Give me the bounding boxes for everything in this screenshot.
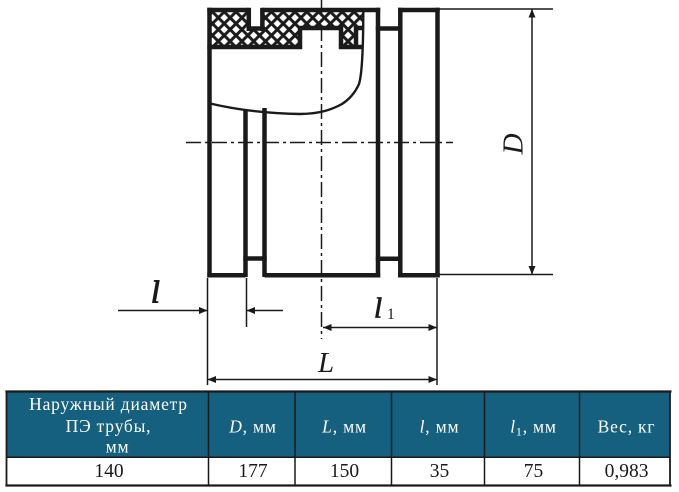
- svg-text:0,983: 0,983: [605, 461, 649, 482]
- svg-text:Наружный диаметр: Наружный диаметр: [29, 394, 188, 414]
- svg-text:ПЭ трубы,: ПЭ трубы,: [66, 416, 152, 436]
- svg-text:l: l: [151, 275, 160, 310]
- svg-text:150: 150: [330, 461, 359, 482]
- svg-text:140: 140: [94, 461, 123, 482]
- svg-text:D: D: [498, 133, 530, 155]
- svg-text:35: 35: [430, 461, 450, 482]
- svg-text:L: L: [317, 347, 334, 379]
- svg-text:D, мм: D, мм: [228, 417, 277, 437]
- svg-text:L, мм: L, мм: [321, 417, 367, 437]
- svg-text:l, мм: l, мм: [420, 417, 460, 437]
- svg-text:мм: мм: [106, 437, 130, 457]
- svg-text:Вес, кг: Вес, кг: [598, 417, 656, 437]
- svg-text:l: l: [374, 293, 382, 325]
- svg-text:1: 1: [387, 306, 395, 323]
- svg-text:177: 177: [238, 461, 268, 482]
- svg-text:75: 75: [524, 461, 544, 482]
